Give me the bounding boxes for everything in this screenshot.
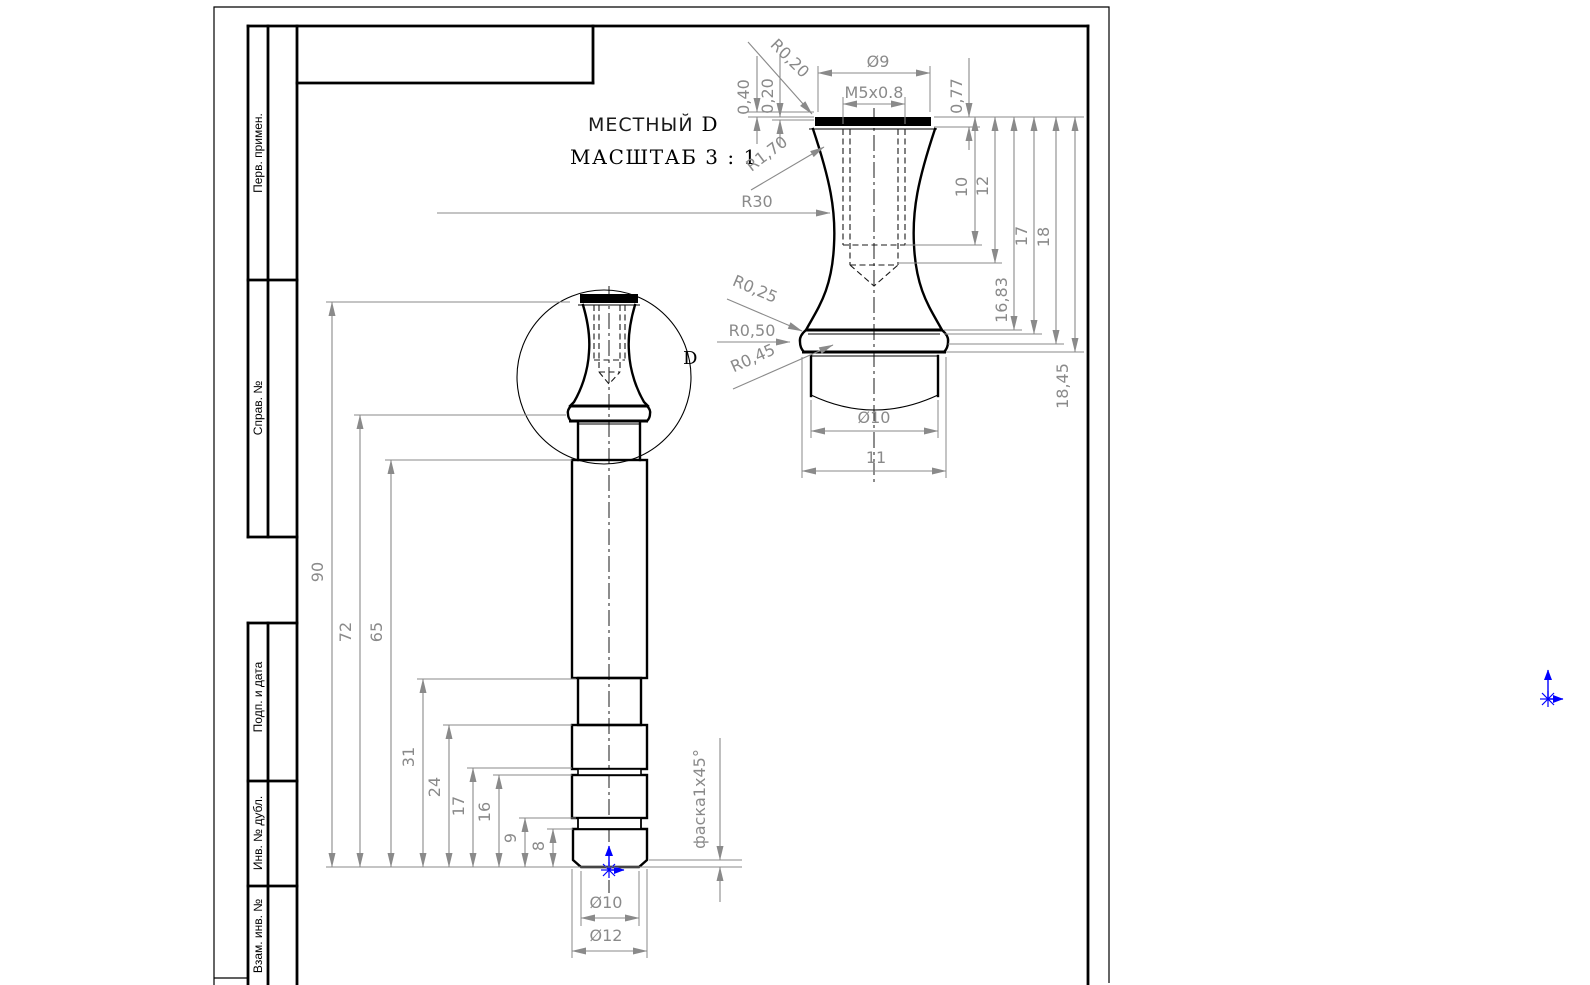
stamp-label-sprav-no: Справ. № [251,381,265,436]
dim-label-31: 31 [399,747,418,767]
dim-label-m5x08: M5x0.8 [845,83,904,102]
dim-label-17: 17 [449,796,468,816]
dim-label-18-45: 18,45 [1053,363,1072,409]
dim-label-r0-45: R0,45 [728,340,778,376]
stamp-label-perv-primen: Перв. примен. [251,113,265,193]
stamp-column: Перв. примен. Справ. № Подп. и дата Инв.… [248,26,297,985]
detail-view-scale: МАСШТАБ 3 : 1 [570,145,758,169]
dim-label-11: 11 [866,448,886,467]
dim-label-r0-50: R0,50 [729,321,776,340]
drawing-canvas: Перв. примен. Справ. № Подп. и дата Инв.… [0,0,1590,985]
dim-label-0-40: 0,40 [734,79,753,115]
dim-label-dia10-main: Ø10 [590,893,623,912]
main-part-hatched-sections [572,460,647,867]
dim-label-r0-20: R0,20 [767,35,813,81]
viewport-origin-icon [1540,670,1563,707]
main-view: D [308,286,742,958]
dim-label-10: 10 [952,177,971,197]
detail-circle [517,290,691,464]
detail-bottom-dimensions: Ø10 11 [802,357,946,478]
dim-label-18: 18 [1034,227,1053,247]
dim-label-65: 65 [367,622,386,642]
dim-label-9: 9 [501,833,520,843]
main-hidden-thread [594,305,625,384]
drawing-sheet-page: Перв. примен. Справ. № Подп. и дата Инв.… [0,0,1590,985]
stamp-label-inv-no-dubl: Инв. № дубл. [251,796,265,870]
dim-label-dia10-detail: Ø10 [858,408,891,427]
dim-label-chamfer: фаска1x45° [690,749,709,849]
dim-label-r30: R30 [741,192,772,211]
dim-label-dia12-main: Ø12 [590,926,623,945]
stamp-label-podp-i-data: Подп. и дата [251,661,265,732]
detail-view: МЕСТНЫЙD МАСШТАБ 3 : 1 [437,35,1084,486]
dim-label-0-77: 0,77 [947,78,966,114]
dim-label-16: 16 [475,802,494,822]
detail-title-word: МЕСТНЫЙ [588,113,694,136]
dim-label-24: 24 [425,777,444,797]
dim-label-r1-70: R1,70 [742,132,791,175]
detail-mark-label: D [683,348,697,369]
dim-label-12: 12 [973,176,992,196]
detail-view-title: МЕСТНЫЙD [588,112,719,136]
dim-label-dia9: Ø9 [867,52,890,71]
main-part-grooves [578,678,641,829]
dim-label-17-detail: 17 [1012,226,1031,246]
sketch-origin-icon [601,846,624,878]
detail-title-letter: D [702,112,720,136]
dim-label-0-20: 0,20 [758,78,777,114]
dim-label-16-83: 16,83 [992,277,1011,323]
stamp-label-vzam-inv-no: Взам. инв. № [251,899,265,973]
main-extension-lines [326,302,742,867]
detail-hidden-thread [843,129,905,286]
dim-label-r0-25: R0,25 [730,271,780,307]
dim-label-90: 90 [308,562,327,582]
dim-label-8: 8 [529,841,548,851]
dim-label-72: 72 [336,622,355,642]
